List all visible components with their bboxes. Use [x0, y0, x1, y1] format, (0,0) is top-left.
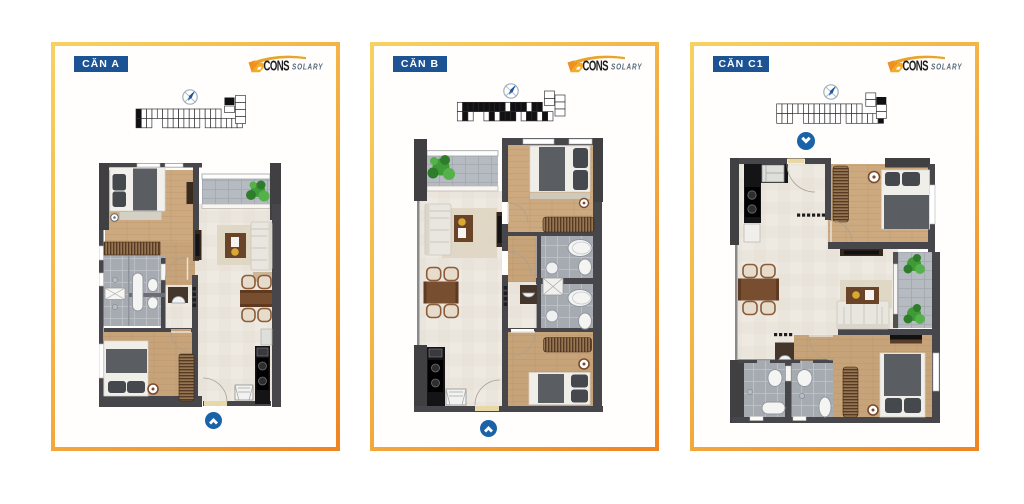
svg-text:SOLARY: SOLARY [611, 62, 643, 72]
svg-text:SOLARY: SOLARY [292, 62, 324, 72]
svg-text:SOLARY: SOLARY [931, 62, 963, 72]
svg-text:CONS: CONS [903, 58, 929, 73]
svg-text:CONS: CONS [264, 58, 290, 73]
svg-text:CONS: CONS [583, 58, 609, 73]
